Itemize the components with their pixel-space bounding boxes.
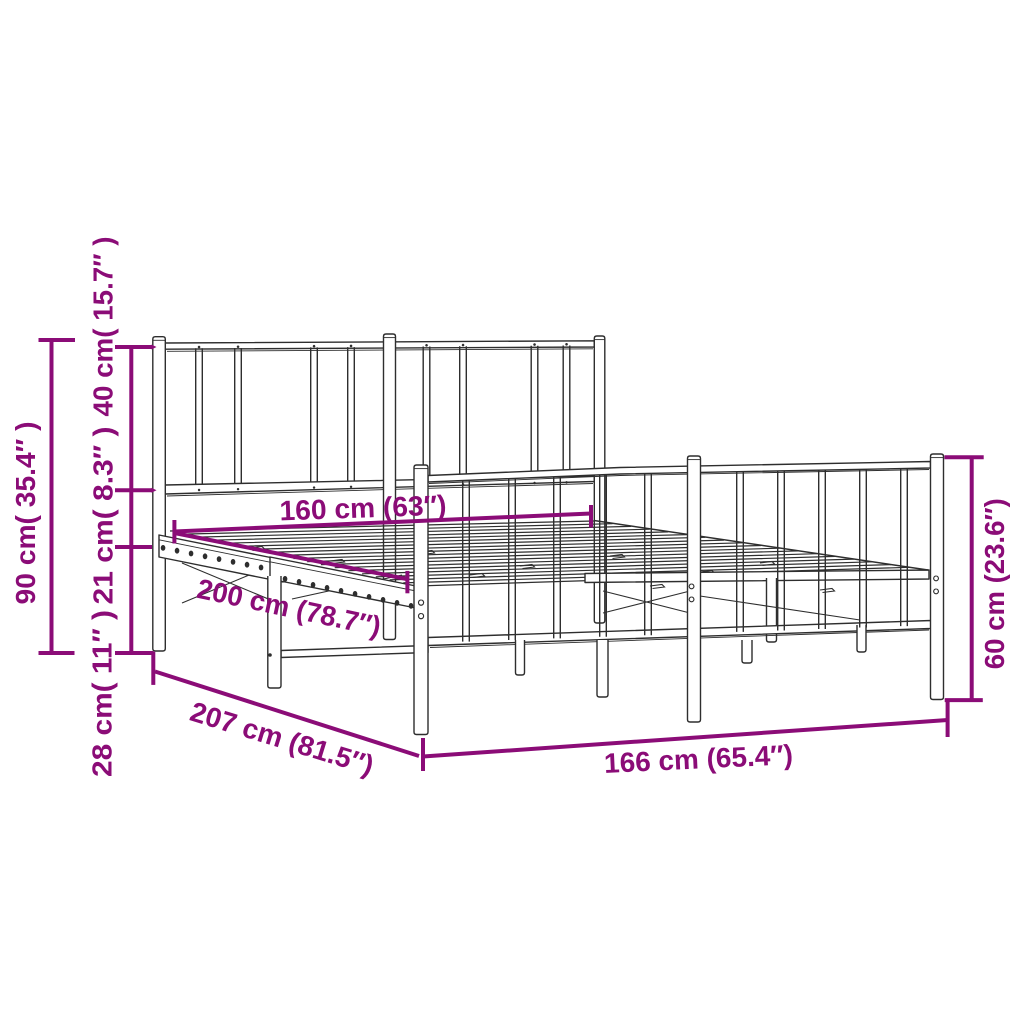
svg-text:28 cm( 11″ ): 28 cm( 11″ )	[87, 610, 118, 777]
svg-text:160 cm (63″): 160 cm (63″)	[279, 490, 447, 527]
svg-text:60 cm (23.6″): 60 cm (23.6″)	[979, 498, 1010, 669]
svg-text:40 cm( 15.7″ ): 40 cm( 15.7″ )	[88, 237, 119, 417]
svg-text:90 cm( 35.4″ ): 90 cm( 35.4″ )	[10, 422, 41, 605]
svg-text:21 cm( 8.3″ ): 21 cm( 8.3″ )	[88, 427, 119, 605]
